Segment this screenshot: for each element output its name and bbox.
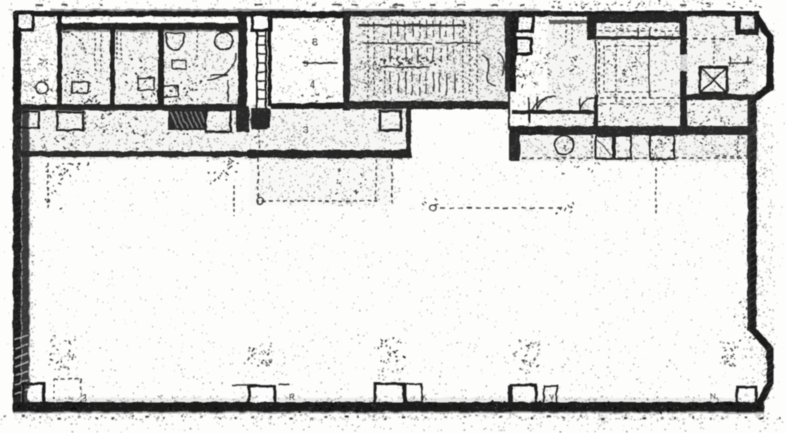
svg-text:N.: N.: [710, 392, 718, 401]
svg-text:R: R: [289, 393, 295, 402]
svg-text:8: 8: [312, 37, 318, 49]
svg-text:5: 5: [304, 60, 309, 69]
svg-text:4: 4: [310, 80, 316, 91]
svg-text:3: 3: [82, 393, 87, 403]
